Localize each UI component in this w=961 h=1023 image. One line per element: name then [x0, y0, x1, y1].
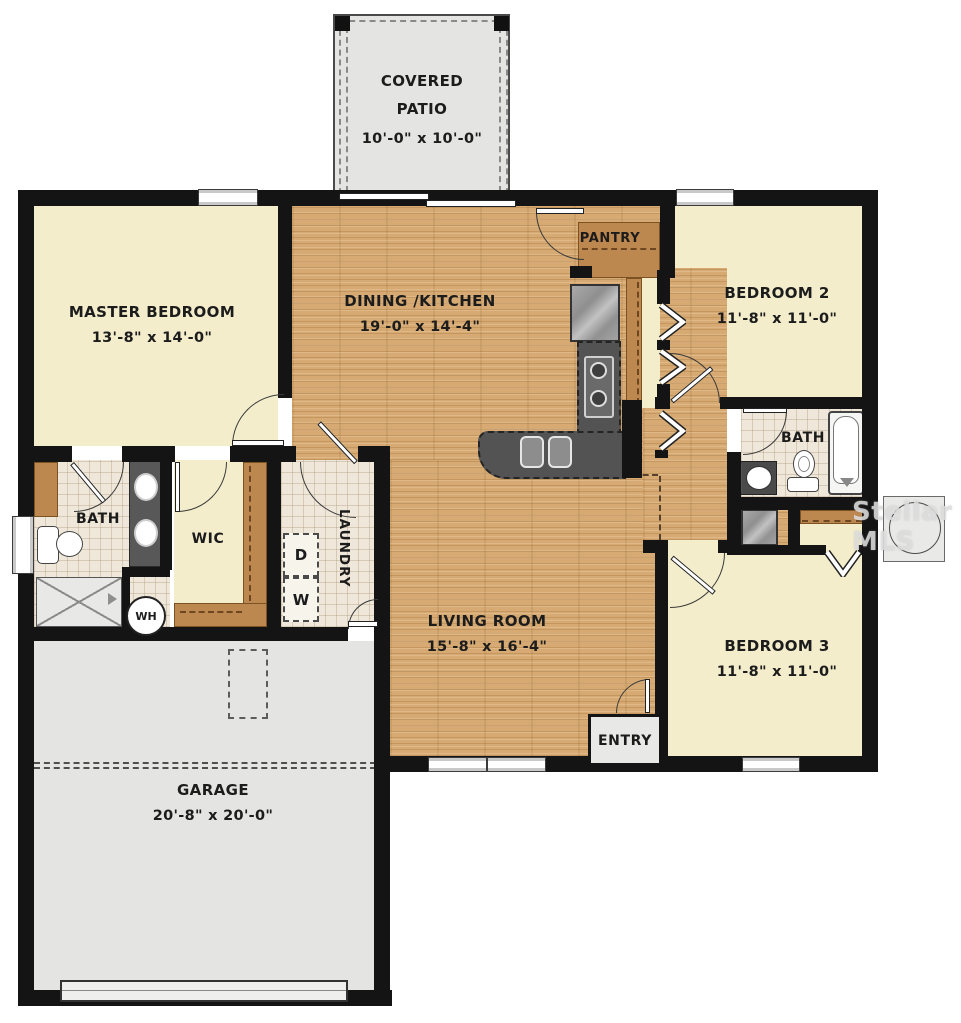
- wall-left: [18, 190, 34, 1006]
- living-room-dims: 15'-8" x 16'-4": [427, 639, 548, 655]
- patio-post-left: [335, 16, 350, 31]
- master-bedroom-dims: 13'-8" x 14'-0": [92, 330, 213, 346]
- bedroom2-name: BEDROOM 2: [724, 284, 829, 302]
- wall-laundry-top-1: [281, 446, 296, 462]
- wall-bath-wic: [160, 460, 172, 570]
- window-living-divider: [486, 757, 488, 772]
- wic-door-leaf: [175, 462, 180, 512]
- garage-door-line: [62, 990, 346, 991]
- garage-dims: 20'-8" x 20'-0": [153, 808, 274, 824]
- wall-wic-laundry: [267, 460, 281, 640]
- master-vanity-sink-2: [134, 519, 158, 547]
- living-room-name: LIVING ROOM: [428, 612, 547, 630]
- washer-label: W: [293, 591, 310, 609]
- master-bedroom-name: MASTER BEDROOM: [69, 303, 235, 321]
- wic-rod-right: [249, 466, 251, 601]
- patio-slider-panel-2: [426, 200, 516, 207]
- garage-name: GARAGE: [177, 781, 249, 799]
- dining-kitchen-name: DINING /KITCHEN: [344, 292, 496, 310]
- wall-right: [862, 190, 878, 772]
- wall-bedroom2-bottom-1: [655, 397, 670, 409]
- window-master-bath-left: [12, 516, 34, 574]
- shower-door-arrow: [108, 593, 117, 605]
- room-label-laundry: LAUNDRY: [336, 498, 352, 598]
- entry-door-leaf: [645, 679, 650, 713]
- hall-toilet-bowl: [746, 466, 772, 490]
- garage-entry-door-leaf: [348, 621, 378, 627]
- patio-slider-panel-1: [339, 193, 429, 200]
- bedroom2-closet-shelf: [626, 278, 642, 408]
- dryer-box: D: [283, 533, 319, 577]
- water-heater: WH: [126, 596, 166, 636]
- room-label-bedroom3: BEDROOM 3 11'-8" x 11'-0": [677, 637, 877, 680]
- stellar-mls-watermark: Stellar MLS: [852, 497, 961, 557]
- garage-dashed-band: [34, 762, 376, 769]
- garage-dashed-box: [228, 649, 268, 719]
- room-label-master-bedroom: MASTER BEDROOM 13'-8" x 14'-0": [52, 303, 252, 346]
- bedroom2-closet-rod: [637, 282, 639, 404]
- patio-dims: 10'-0" x 10'-0": [362, 126, 483, 153]
- stove-burner-1: [590, 362, 607, 379]
- wall-hall-bottom-2: [718, 540, 727, 553]
- room-label-entry: ENTRY: [593, 733, 657, 749]
- stove-burner-2: [590, 390, 607, 407]
- room-label-wic: WIC: [180, 531, 236, 547]
- wall-master-bottom-1: [34, 446, 72, 462]
- kitchen-sink-basin-2: [548, 436, 572, 468]
- wall-pantry-bedroom2: [660, 206, 675, 278]
- wic-shelf-bottom: [174, 603, 267, 627]
- room-label-pantry: PANTRY: [575, 231, 645, 246]
- master-bedroom-door-leaf: [232, 440, 284, 446]
- floor-plan: COVERED PATIO 10'-0" x 10'-0": [0, 0, 961, 1023]
- wall-bedroom3-closet-b1: [800, 545, 826, 555]
- wall-garage-top-1: [34, 627, 348, 641]
- hall-closet-bifold: [658, 410, 686, 452]
- kitchen-sink-basin-1: [520, 436, 544, 468]
- hall-bath-tub-inner: [833, 416, 859, 484]
- wall-kitchen-hall: [622, 400, 642, 478]
- bedroom2-bifold-2: [658, 348, 686, 386]
- window-bedroom3-bottom: [742, 757, 800, 772]
- dining-kitchen-dims: 19'-0" x 14'-4": [360, 319, 481, 335]
- refrigerator: [570, 284, 620, 342]
- washer-box: W: [283, 577, 319, 622]
- patio-name: COVERED PATIO: [360, 68, 484, 124]
- room-label-living-room: LIVING ROOM 15'-8" x 16'-4": [387, 612, 587, 655]
- master-bath-shelf: [34, 462, 58, 517]
- water-heater-label: WH: [135, 610, 156, 623]
- bedroom3-name: BEDROOM 3: [724, 637, 829, 655]
- room-label-bedroom2: BEDROOM 2 11'-8" x 11'-0": [677, 284, 877, 327]
- pantry-door-leaf: [536, 208, 584, 214]
- dryer-label: D: [295, 546, 307, 564]
- wall-pantry-stub: [570, 266, 592, 278]
- pantry-rod: [582, 248, 656, 250]
- wall-bedroom2-bottom-2: [720, 397, 864, 409]
- master-vanity-sink-1: [134, 473, 158, 501]
- hall-bath-tub-drain: [840, 478, 854, 487]
- bedroom2-dims: 11'-8" x 11'-0": [717, 311, 838, 327]
- wall-bedroom3-closet-side: [788, 510, 800, 555]
- window-master-top: [198, 189, 258, 206]
- room-label-dining-kitchen: DINING /KITCHEN 19'-0" x 14'-4": [320, 292, 520, 335]
- wic-rod-bottom: [180, 611, 242, 613]
- hall-sink-pedestal: [787, 477, 819, 492]
- wall-laundry-top-2: [358, 446, 374, 462]
- wall-hall-stub-1: [657, 270, 670, 304]
- hall-divider-dash-v: [659, 476, 661, 540]
- window-bedroom2-top: [676, 189, 734, 206]
- wall-wh-top: [122, 567, 170, 577]
- patio-post-right: [494, 16, 509, 31]
- wall-master-right-upper: [278, 206, 292, 398]
- wall-garage-right: [374, 446, 390, 1006]
- garage-door: [60, 980, 348, 1002]
- wall-nook-bottom: [727, 545, 790, 555]
- hvac-unit: [741, 509, 778, 546]
- hall-sink-bowl-inner: [798, 456, 810, 472]
- room-label-garage: GARAGE 20'-8" x 20'-0": [113, 781, 313, 824]
- wall-hall-bottom-1: [643, 540, 668, 553]
- room-label-covered-patio: COVERED PATIO 10'-0" x 10'-0": [360, 68, 484, 152]
- master-toilet-bowl: [56, 531, 83, 557]
- bedroom3-dims: 11'-8" x 11'-0": [717, 664, 838, 680]
- room-label-hall-bath: BATH: [771, 430, 835, 446]
- wall-hallbath-bottom: [727, 497, 864, 510]
- hall-bath-door-leaf: [743, 408, 787, 413]
- room-label-master-bath: BATH: [68, 511, 128, 527]
